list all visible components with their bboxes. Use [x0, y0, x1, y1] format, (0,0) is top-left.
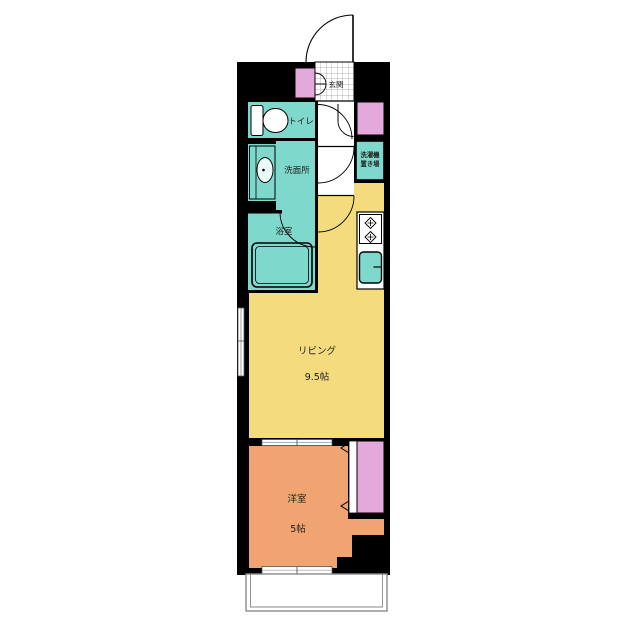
room-bathroom: 浴室 [248, 210, 315, 290]
floorplan-canvas: 玄関 トイレ 洗濯機 置き場 洗面所 [0, 0, 640, 640]
bedroom-size-label: 5帖 [290, 523, 306, 535]
laundry-space: 洗濯機 置き場 [356, 141, 384, 180]
washroom-label: 洗面所 [284, 165, 310, 176]
closet-body [357, 441, 384, 513]
balcony-window [262, 567, 332, 575]
bedroom-label: 洋室 [287, 493, 306, 505]
hallway-floor [318, 101, 354, 195]
laundry-label-line2: 置き場 [361, 159, 381, 168]
closet-door-track [349, 441, 357, 513]
living-bedroom-sliding-door [262, 440, 332, 446]
room-toilet: トイレ [248, 102, 315, 138]
living-label: リビング [298, 345, 337, 357]
living-size-label: 9.5帖 [305, 371, 330, 383]
floorplan-drawing: 玄関 トイレ 洗濯機 置き場 洗面所 [0, 0, 640, 640]
hall-storage-cabinet [357, 102, 384, 135]
balcony [246, 574, 387, 611]
living-window [238, 308, 244, 376]
laundry-label-line1: 洗濯機 [361, 150, 381, 159]
toilet-tank-icon [251, 106, 263, 136]
bathroom-wall-stub [248, 210, 282, 214]
genkan-label: 玄関 [329, 79, 344, 89]
toilet-label: トイレ [288, 117, 314, 127]
bathroom-label: 浴室 [275, 226, 293, 237]
room-genkan: 玄関 [315, 62, 354, 101]
washroom-floor [276, 141, 315, 212]
toilet-bowl-icon [263, 109, 288, 133]
kitchen-counter [357, 212, 384, 289]
vanity-basin-icon [257, 158, 273, 183]
balcony-floor [246, 574, 387, 611]
entry-storage-cabinet [295, 68, 315, 98]
hallway [315, 101, 354, 195]
vanity-drain-icon [262, 169, 265, 172]
